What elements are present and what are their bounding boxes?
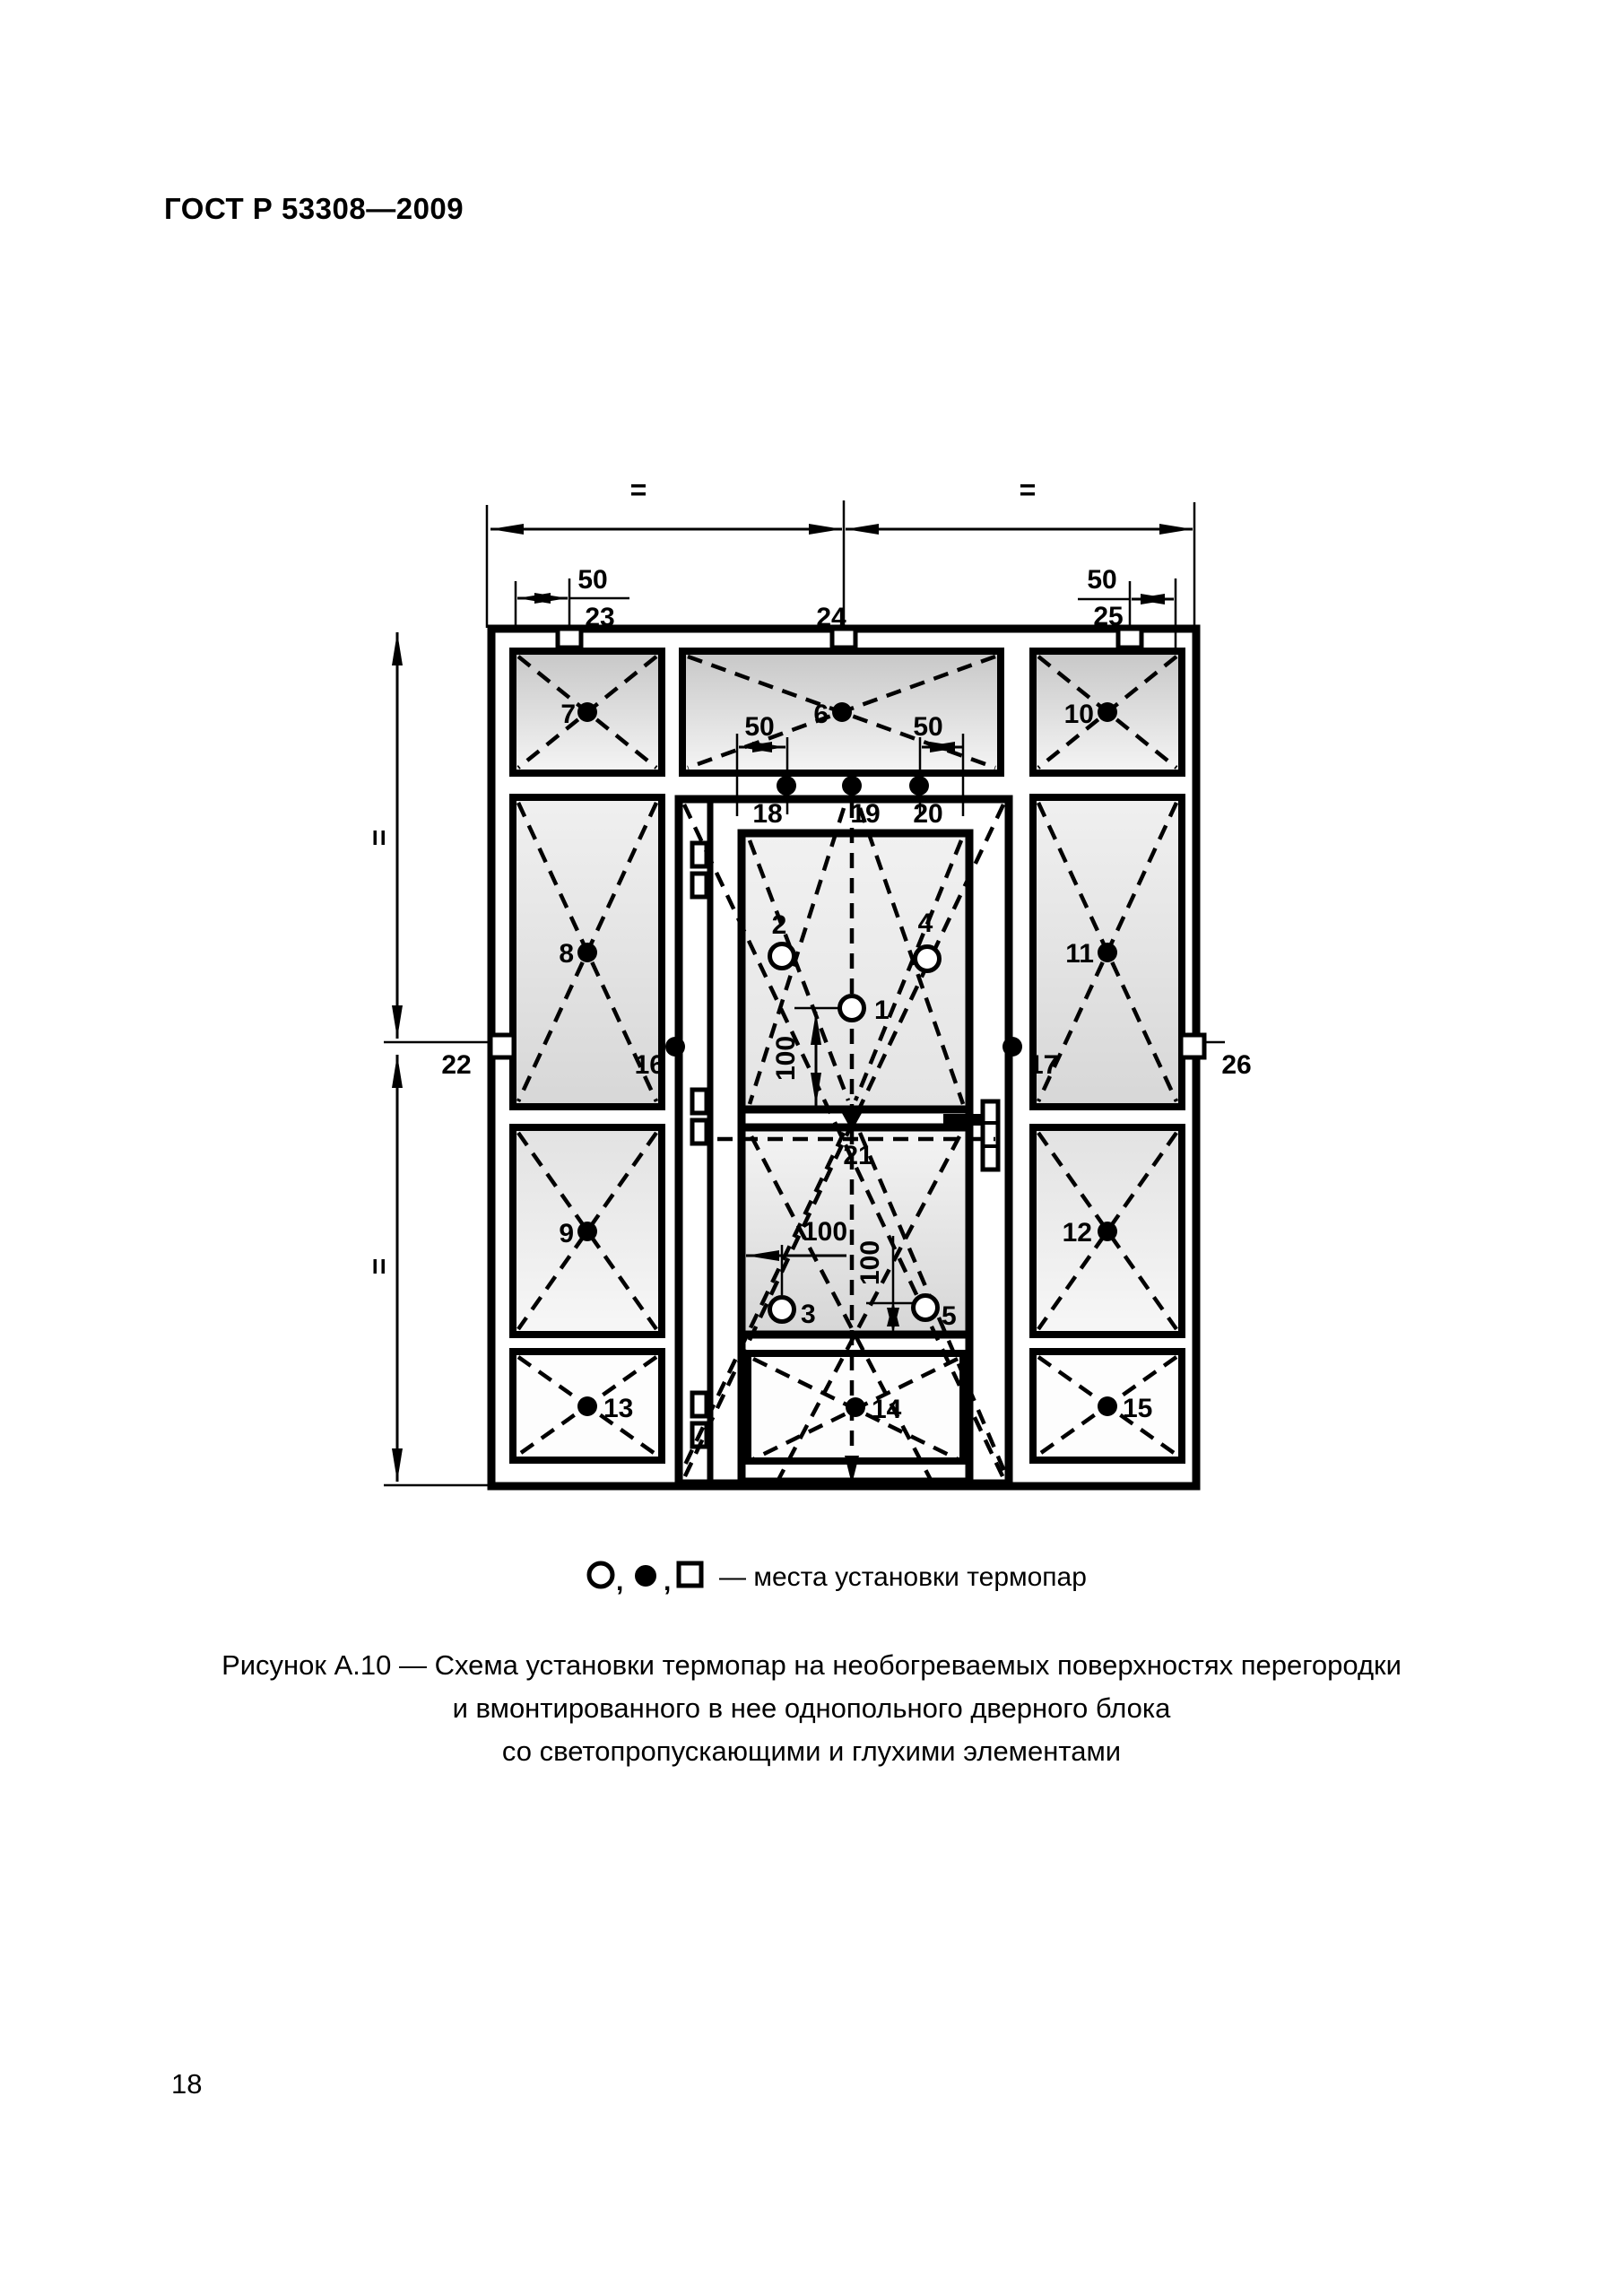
- dim-50-top-left: 50: [577, 565, 607, 595]
- dim-100-point1: 100: [771, 1036, 801, 1081]
- label-2: 2: [772, 910, 787, 940]
- dim-50-panel6-right: 50: [913, 712, 942, 742]
- thermocouple-4: [916, 947, 940, 971]
- label-4: 4: [918, 909, 933, 938]
- label-17: 17: [1028, 1050, 1058, 1080]
- thermocouple-5: [914, 1296, 938, 1320]
- label-6: 6: [813, 700, 829, 729]
- thermocouple-10: [1098, 702, 1117, 722]
- label-19: 19: [850, 799, 880, 829]
- thermocouple-1: [840, 996, 864, 1021]
- equal-mark-left-upper: =: [363, 830, 395, 847]
- label-15: 15: [1123, 1394, 1152, 1423]
- open-square-icon: [679, 1563, 701, 1586]
- figure-caption: Рисунок А.10 — Схема установки термопар …: [0, 1644, 1623, 1773]
- figure-a10-diagram: 1 2 3 4 5 6 7 8 9 10 11 12 13 14 15 16 1…: [0, 0, 1623, 2296]
- label-5: 5: [942, 1301, 957, 1331]
- equal-mark-left-lower: =: [363, 1258, 395, 1275]
- thermocouple-15: [1098, 1396, 1117, 1416]
- label-7: 7: [560, 700, 576, 729]
- thermocouple-2: [770, 944, 794, 969]
- dim-100-point5: 100: [855, 1240, 885, 1285]
- dim-100-point3: 100: [803, 1217, 847, 1247]
- label-14: 14: [872, 1395, 902, 1424]
- page-number: 18: [171, 2068, 202, 2100]
- thermocouple-23: [558, 629, 581, 648]
- filled-circle-icon: [635, 1565, 656, 1587]
- label-8: 8: [559, 939, 574, 969]
- thermocouple-3: [770, 1298, 794, 1322]
- thermocouple-26: [1181, 1035, 1204, 1057]
- legend-comma-2: ,: [664, 1567, 671, 1596]
- label-18: 18: [752, 799, 782, 829]
- equal-mark-top-right: =: [1020, 474, 1037, 506]
- thermocouple-13: [577, 1396, 597, 1416]
- thermocouple-20: [909, 776, 929, 796]
- open-circle-icon: [589, 1563, 612, 1587]
- thermocouple-12: [1098, 1222, 1117, 1241]
- document-page: ГОСТ Р 53308—2009: [0, 0, 1623, 2296]
- label-9: 9: [559, 1219, 574, 1248]
- thermocouple-22: [490, 1035, 514, 1057]
- figure-caption-line-3: со светопропускающими и глухими элемента…: [0, 1730, 1623, 1773]
- thermocouple-19: [842, 776, 862, 796]
- figure-legend: , , — места установки термопар: [589, 1562, 1087, 1596]
- thermocouple-16: [665, 1037, 685, 1057]
- label-23: 23: [585, 603, 614, 632]
- thermocouple-17: [1002, 1037, 1022, 1057]
- thermocouple-11: [1098, 943, 1117, 962]
- thermocouple-8: [577, 943, 597, 962]
- thermocouple-6: [832, 702, 852, 722]
- label-26: 26: [1221, 1050, 1251, 1080]
- thermocouple-18: [777, 776, 796, 796]
- figure-caption-line-2: и вмонтированного в нее однопольного две…: [0, 1687, 1623, 1730]
- figure-caption-line-1: Рисунок А.10 — Схема установки термопар …: [0, 1644, 1623, 1687]
- label-11: 11: [1065, 939, 1094, 969]
- legend-text: — места установки термопар: [719, 1562, 1087, 1592]
- label-3: 3: [801, 1300, 816, 1329]
- label-22: 22: [441, 1050, 471, 1080]
- equal-mark-top-left: =: [630, 474, 647, 506]
- label-24: 24: [816, 603, 846, 632]
- dim-50-panel6-left: 50: [744, 712, 774, 742]
- thermocouple-25: [1118, 629, 1141, 648]
- thermocouple-7: [577, 702, 597, 722]
- label-1: 1: [874, 996, 890, 1025]
- dim-50-top-right: 50: [1087, 565, 1116, 595]
- label-10: 10: [1064, 700, 1094, 729]
- label-16: 16: [635, 1050, 664, 1080]
- label-12: 12: [1063, 1218, 1092, 1248]
- thermocouple-9: [577, 1222, 597, 1241]
- label-13: 13: [603, 1394, 633, 1423]
- thermocouple-14: [846, 1397, 865, 1417]
- label-20: 20: [913, 799, 942, 829]
- label-25: 25: [1093, 602, 1123, 631]
- label-21: 21: [843, 1141, 872, 1170]
- legend-comma-1: ,: [616, 1567, 623, 1596]
